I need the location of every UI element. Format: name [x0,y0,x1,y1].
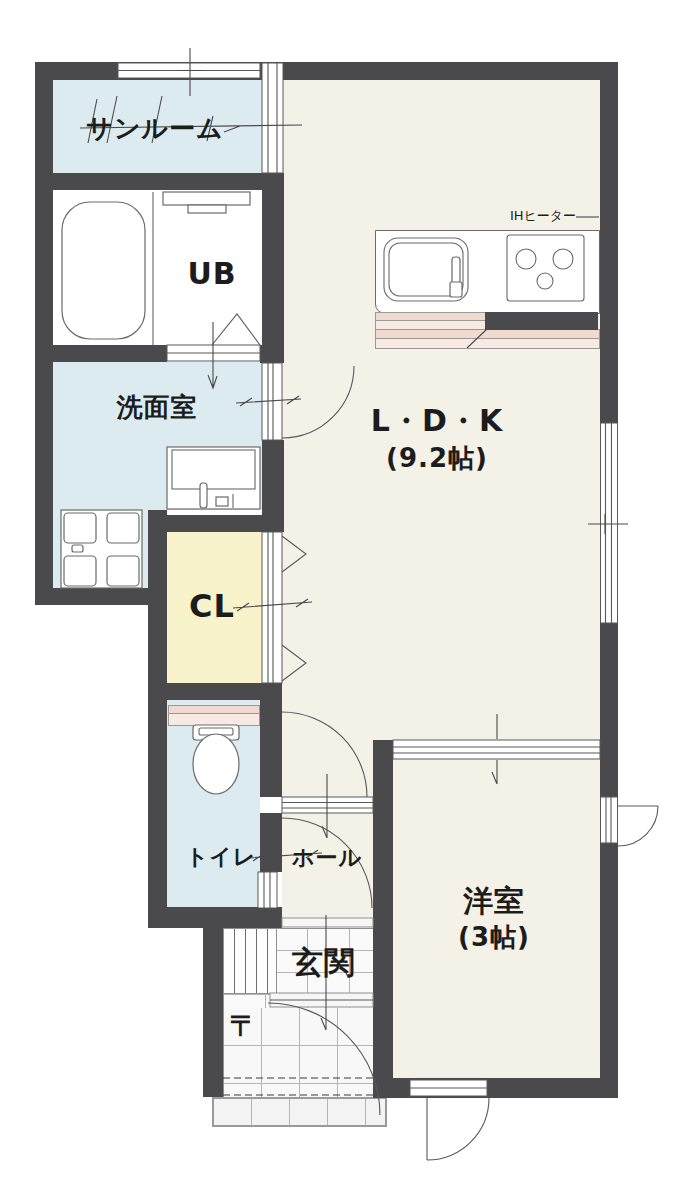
room-toilet-floor [167,700,260,907]
wall-bottom [373,1078,618,1098]
western-room-size-label: (3帖) [458,920,530,955]
wall-ub-south-east [260,345,284,363]
wall-closet-south [167,683,260,700]
wall-ub-south-west [35,345,167,362]
postal-mark-symbol: 〒 [230,1007,259,1045]
western-room-label: 洋室 [463,881,525,922]
closet-label: CL [189,587,235,625]
entrance-label: 玄関 [292,942,356,984]
kitchen-band-4 [375,338,600,349]
floor-plan: サンルーム UB 洗面室 CL トイレ ホール 玄関 L・D・K (9.2帖) … [0,0,699,1200]
washroom-label: 洗面室 [117,390,198,425]
room-hall-floor [282,740,373,918]
wall-hall-east [373,740,393,1097]
ldk-label: L・D・K [371,401,503,442]
kitchen-counter [375,230,600,314]
ldk-size-label: (9.2帖) [386,441,488,476]
ih-heater-label: IHヒーター [510,207,576,225]
wall-mid-below-washdoor [262,440,284,532]
hall-label: ホール [292,843,362,873]
room-washroom-floor-lower [53,510,148,588]
wall-sunroom-south [35,173,284,190]
toilet-label: トイレ [186,842,257,872]
wall-mid-hall [260,813,282,872]
wall-left [35,62,53,605]
wall-mid-upper [262,190,284,345]
wall-top [35,62,618,80]
wall-closet-west-column [148,510,167,928]
wall-entrance-west [203,928,223,1097]
wall-closet-north [167,515,262,532]
wall-right [600,62,618,1098]
western-side-door-arc [618,806,658,846]
entrance-steps [223,928,277,994]
porch-outer-step [212,1097,387,1127]
room-washroom-floor [53,362,262,510]
western-bottom-door-arc [427,1098,489,1160]
wall-toilet-south [148,907,282,928]
unit-bath-label: UB [187,256,236,291]
kitchen-return-wall [485,312,598,330]
wall-mid-below-closet [260,683,282,797]
sunroom-label: サンルーム [86,111,223,146]
toilet-shelf-band-light [168,713,260,726]
